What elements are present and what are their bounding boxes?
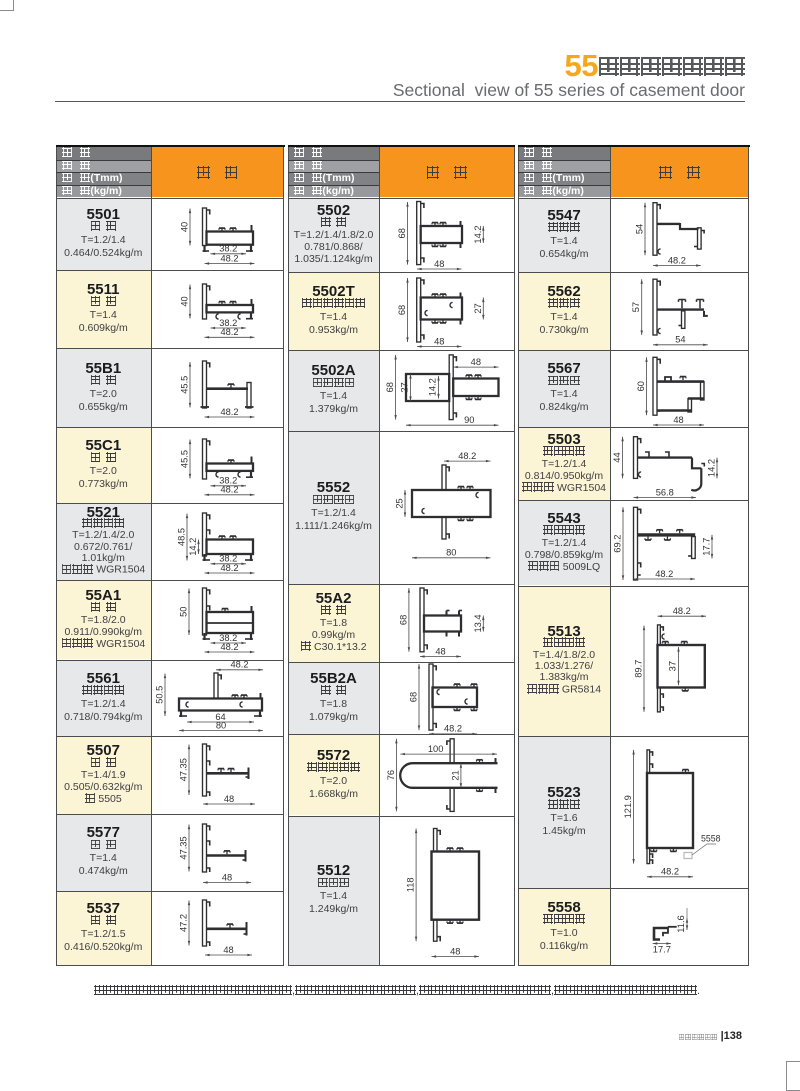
svg-text:40: 40: [179, 296, 189, 306]
svg-text:21: 21: [450, 771, 460, 781]
svg-text:11.6: 11.6: [676, 915, 686, 932]
svg-text:48: 48: [673, 414, 683, 424]
svg-text:50.5: 50.5: [154, 685, 164, 703]
svg-text:45.5: 45.5: [179, 450, 189, 468]
svg-text:48.2: 48.2: [655, 569, 673, 579]
svg-text:48: 48: [223, 794, 233, 804]
svg-text:54: 54: [635, 223, 645, 233]
svg-text:68: 68: [397, 305, 407, 315]
svg-text:118: 118: [406, 877, 416, 892]
svg-text:60: 60: [636, 381, 646, 391]
svg-text:27: 27: [400, 382, 410, 392]
svg-text:48.2: 48.2: [444, 723, 462, 733]
svg-text:47.2: 47.2: [178, 914, 188, 932]
svg-text:48.5: 48.5: [176, 528, 186, 546]
svg-text:17.7: 17.7: [701, 537, 711, 555]
svg-text:69.2: 69.2: [613, 534, 623, 552]
svg-text:68: 68: [397, 228, 407, 238]
svg-text:48.2: 48.2: [220, 485, 238, 495]
svg-text:48: 48: [435, 646, 445, 656]
svg-text:14.2: 14.2: [707, 459, 717, 477]
svg-text:45.5: 45.5: [179, 376, 189, 394]
svg-text:90: 90: [464, 415, 474, 425]
svg-text:14.2: 14.2: [188, 538, 198, 556]
svg-text:48.2: 48.2: [661, 867, 679, 877]
svg-text:27: 27: [473, 303, 483, 313]
svg-text:48.2: 48.2: [668, 255, 686, 265]
svg-text:14.2: 14.2: [428, 378, 438, 396]
svg-text:48: 48: [221, 872, 231, 882]
svg-text:89.7: 89.7: [634, 659, 644, 677]
svg-text:13.4: 13.4: [473, 614, 483, 632]
svg-text:38.2: 38.2: [219, 243, 237, 253]
svg-text:48.2: 48.2: [220, 253, 238, 263]
svg-text:100: 100: [428, 744, 444, 754]
svg-text:68: 68: [409, 691, 419, 701]
svg-text:50: 50: [178, 607, 188, 617]
svg-text:48.2: 48.2: [220, 563, 238, 573]
svg-text:47.35: 47.35: [178, 836, 188, 859]
svg-text:47.35: 47.35: [178, 759, 188, 782]
svg-text:121.9: 121.9: [623, 796, 633, 819]
svg-text:80: 80: [446, 547, 456, 557]
svg-text:44: 44: [612, 453, 622, 463]
svg-text:48.2: 48.2: [220, 642, 238, 652]
svg-text:68: 68: [385, 382, 395, 392]
svg-text:76: 76: [386, 770, 396, 780]
svg-text:48: 48: [223, 945, 233, 955]
svg-text:48.2: 48.2: [220, 327, 238, 337]
svg-text:40: 40: [179, 221, 189, 231]
svg-text:68: 68: [398, 615, 408, 625]
svg-text:57: 57: [631, 302, 641, 312]
svg-text:48.2: 48.2: [673, 605, 691, 615]
svg-text:25: 25: [395, 498, 405, 508]
svg-text:37: 37: [668, 660, 678, 670]
svg-text:80: 80: [215, 720, 225, 730]
svg-text:48: 48: [471, 356, 481, 366]
svg-text:48: 48: [434, 258, 444, 268]
svg-text:5558: 5558: [701, 834, 721, 844]
svg-text:48: 48: [434, 336, 444, 346]
svg-text:17.7: 17.7: [653, 945, 671, 955]
svg-text:14.2: 14.2: [473, 225, 483, 243]
svg-text:48: 48: [450, 946, 460, 956]
svg-text:48.2: 48.2: [220, 407, 238, 417]
svg-text:56.8: 56.8: [656, 488, 674, 498]
svg-text:48.2: 48.2: [458, 451, 476, 461]
svg-text:54: 54: [675, 335, 685, 345]
